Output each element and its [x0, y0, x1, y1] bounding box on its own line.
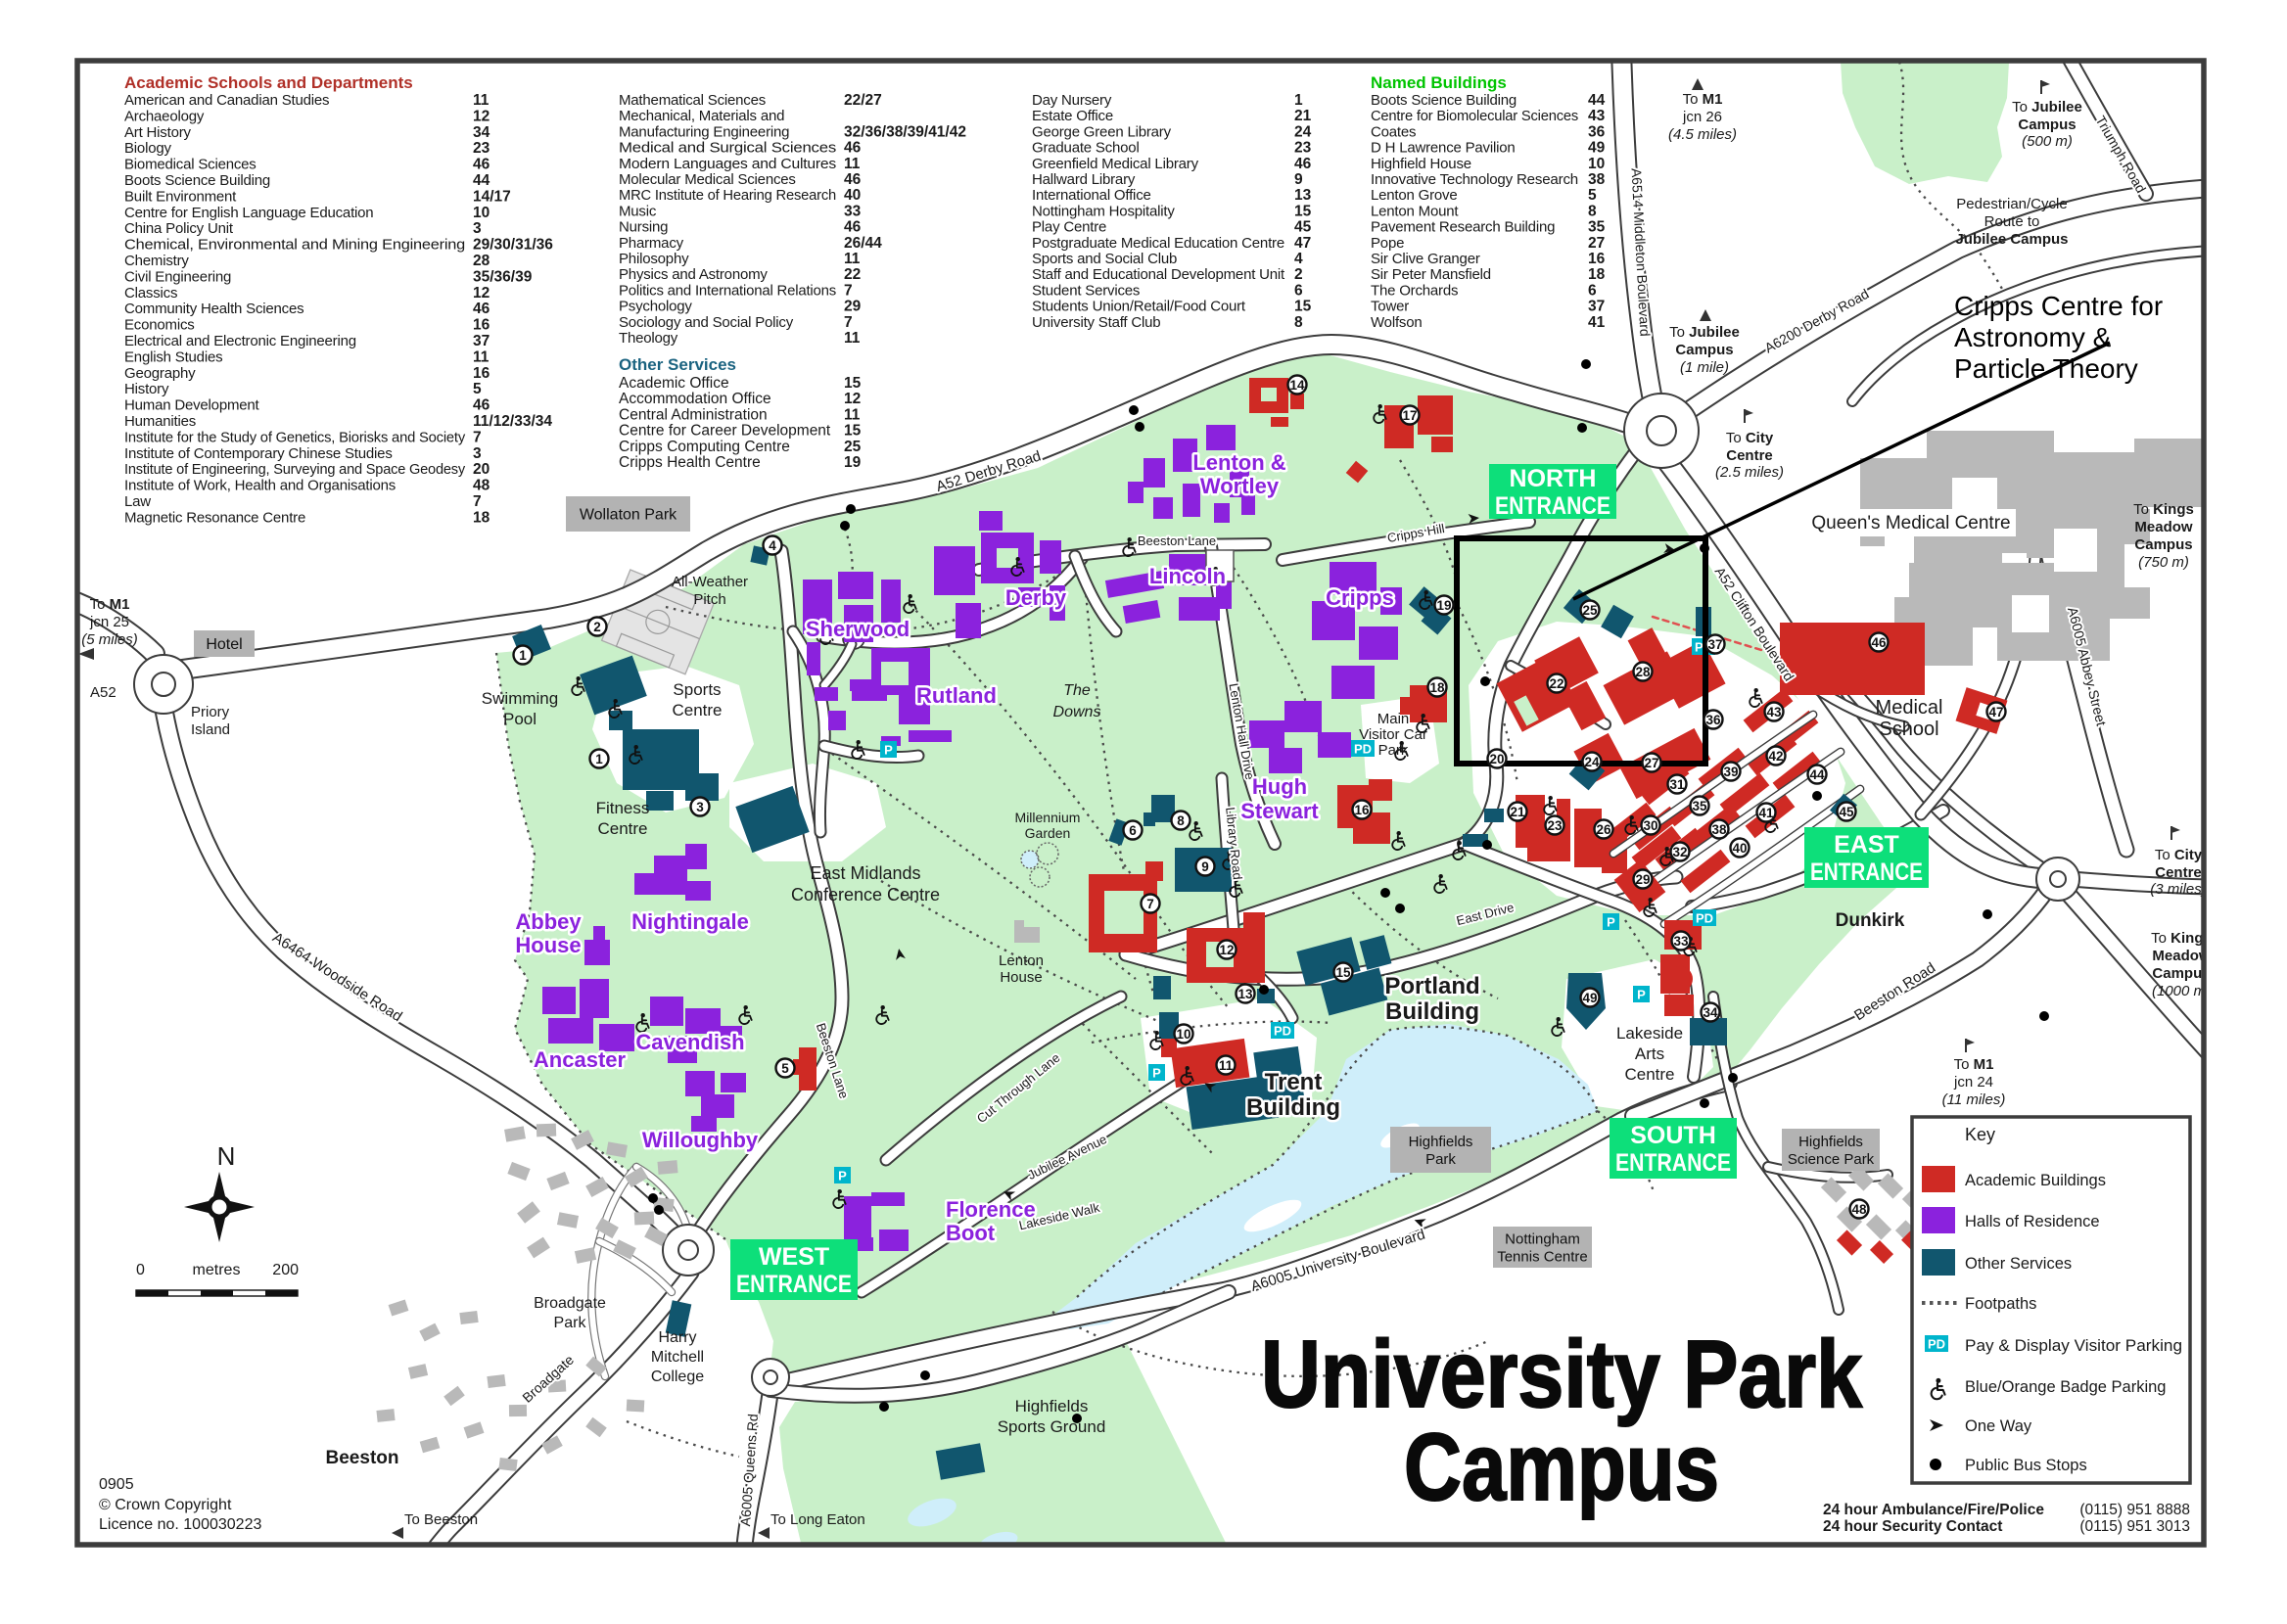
svg-text:Staff and Educational Developm: Staff and Educational Development Unit — [1032, 266, 1285, 283]
svg-text:Pharmacy: Pharmacy — [619, 235, 684, 252]
svg-text:1: 1 — [1294, 92, 1303, 109]
svg-text:Sports Ground: Sports Ground — [998, 1417, 1106, 1436]
svg-text:3: 3 — [696, 800, 704, 814]
svg-text:To Jubilee: To Jubilee — [2012, 99, 2082, 116]
svg-text:Derby: Derby — [1005, 585, 1067, 610]
svg-text:Highfield House: Highfield House — [1371, 156, 1471, 172]
svg-text:Main: Main — [1377, 711, 1410, 727]
svg-text:12: 12 — [473, 108, 490, 124]
svg-text:jcn 26: jcn 26 — [1682, 109, 1722, 125]
svg-text:George Green Library: George Green Library — [1032, 123, 1172, 140]
svg-text:jcn 24: jcn 24 — [1953, 1074, 1993, 1090]
svg-text:Institute of Engineering, Surv: Institute of Engineering, Surveying and … — [124, 461, 466, 478]
svg-text:33: 33 — [1673, 934, 1689, 949]
svg-text:Physics and Astronomy: Physics and Astronomy — [619, 266, 768, 283]
svg-text:7: 7 — [1146, 897, 1154, 911]
svg-text:Student Services: Student Services — [1032, 282, 1140, 299]
svg-text:Building: Building — [1246, 1094, 1340, 1121]
svg-text:Park: Park — [554, 1315, 587, 1331]
svg-text:Science Park: Science Park — [1788, 1151, 1875, 1168]
svg-text:Molecular Medical Sciences: Molecular Medical Sciences — [619, 171, 796, 188]
svg-text:All-Weather: All-Weather — [672, 574, 748, 590]
svg-text:38: 38 — [1711, 822, 1727, 837]
svg-text:Beeston: Beeston — [326, 1448, 399, 1468]
svg-text:5: 5 — [1588, 187, 1597, 204]
svg-text:Abbey: Abbey — [515, 909, 582, 934]
svg-text:(750 m): (750 m) — [2138, 554, 2189, 571]
svg-text:24: 24 — [1584, 755, 1600, 769]
svg-text:46: 46 — [1294, 156, 1312, 172]
svg-text:P: P — [838, 1169, 847, 1183]
svg-text:Lenton: Lenton — [999, 952, 1044, 969]
svg-text:East Midlands: East Midlands — [810, 863, 920, 883]
svg-text:Nightingale: Nightingale — [631, 909, 749, 934]
svg-text:Named Buildings: Named Buildings — [1371, 73, 1507, 92]
svg-text:12: 12 — [473, 285, 490, 302]
svg-text:14: 14 — [1289, 378, 1305, 393]
svg-text:Human Development: Human Development — [124, 397, 260, 414]
svg-text:Park: Park — [1425, 1151, 1456, 1168]
svg-text:Centre for Biomolecular Scienc: Centre for Biomolecular Sciences — [1371, 108, 1578, 124]
svg-text:8: 8 — [1177, 813, 1185, 828]
svg-text:International Office: International Office — [1032, 187, 1151, 204]
svg-text:Pitch: Pitch — [693, 591, 725, 608]
svg-text:(0115) 951 8888: (0115) 951 8888 — [2079, 1502, 2190, 1518]
svg-text:Arts: Arts — [1635, 1044, 1664, 1063]
svg-text:26/44: 26/44 — [844, 235, 882, 252]
svg-text:Philosophy: Philosophy — [619, 251, 689, 267]
svg-text:Hallward Library: Hallward Library — [1032, 171, 1136, 188]
svg-text:48: 48 — [473, 478, 490, 494]
svg-text:6: 6 — [1294, 282, 1303, 299]
svg-text:3: 3 — [473, 220, 482, 237]
svg-text:23: 23 — [473, 140, 490, 157]
svg-text:11: 11 — [844, 330, 861, 347]
svg-text:Civil Engineering: Civil Engineering — [124, 268, 231, 285]
svg-text:40: 40 — [844, 187, 861, 204]
svg-text:Rutland: Rutland — [916, 683, 997, 708]
svg-text:(2.5 miles): (2.5 miles) — [1715, 464, 1784, 481]
svg-text:Pay & Display Visitor Parking: Pay & Display Visitor Parking — [1965, 1337, 2182, 1355]
svg-text:A52: A52 — [90, 684, 117, 701]
svg-text:37: 37 — [1707, 637, 1722, 652]
svg-text:Willoughby: Willoughby — [642, 1128, 759, 1152]
svg-text:17: 17 — [1402, 408, 1417, 423]
svg-text:11: 11 — [844, 406, 861, 423]
svg-text:Harry: Harry — [658, 1329, 696, 1346]
svg-text:Psychology: Psychology — [619, 299, 692, 315]
svg-text:4: 4 — [1294, 251, 1303, 267]
svg-text:Manufacturing Engineering: Manufacturing Engineering — [619, 123, 789, 140]
svg-text:Lenton &: Lenton & — [1192, 450, 1285, 475]
svg-text:42: 42 — [1768, 749, 1783, 764]
svg-text:Route to: Route to — [1984, 213, 2040, 230]
svg-text:Campus: Campus — [2134, 536, 2192, 553]
svg-text:18: 18 — [1588, 266, 1606, 283]
svg-text:5: 5 — [781, 1061, 789, 1076]
svg-text:24: 24 — [1294, 123, 1312, 140]
svg-text:Millennium: Millennium — [1015, 810, 1081, 825]
svg-text:History: History — [124, 381, 169, 397]
svg-text:13: 13 — [1237, 987, 1253, 1001]
svg-text:Sports: Sports — [673, 680, 721, 699]
svg-text:Island: Island — [191, 721, 230, 738]
svg-text:Wollaton Park: Wollaton Park — [580, 507, 677, 524]
svg-text:35: 35 — [1588, 219, 1606, 236]
svg-text:Sports and Social Club: Sports and Social Club — [1032, 251, 1177, 267]
svg-text:To M1: To M1 — [1954, 1056, 1994, 1073]
svg-text:7: 7 — [844, 314, 853, 331]
svg-text:Pool: Pool — [503, 710, 537, 728]
svg-text:House: House — [1000, 969, 1042, 986]
svg-text:To Jubilee: To Jubilee — [1669, 324, 1740, 341]
svg-text:43: 43 — [1588, 108, 1606, 124]
svg-text:32/36/38/39/41/42: 32/36/38/39/41/42 — [844, 123, 966, 140]
svg-text:Nottingham Hospitality: Nottingham Hospitality — [1032, 203, 1175, 219]
svg-text:49: 49 — [1588, 140, 1606, 157]
svg-text:46: 46 — [473, 301, 490, 317]
svg-text:7: 7 — [844, 282, 853, 299]
svg-text:24 hour Security Contact: 24 hour Security Contact — [1823, 1518, 2002, 1535]
svg-text:Geography: Geography — [124, 365, 196, 382]
svg-text:(4.5 miles): (4.5 miles) — [1668, 126, 1737, 143]
svg-text:Campus: Campus — [2018, 116, 2076, 133]
svg-text:Graduate School: Graduate School — [1032, 140, 1140, 157]
svg-text:22: 22 — [1549, 676, 1564, 691]
svg-text:(500 m): (500 m) — [2022, 133, 2073, 150]
svg-text:Law: Law — [124, 493, 151, 510]
svg-text:38: 38 — [1588, 171, 1606, 188]
svg-text:29: 29 — [844, 299, 862, 315]
svg-text:Play Centre: Play Centre — [1032, 219, 1106, 236]
svg-text:10: 10 — [473, 205, 490, 221]
svg-text:46: 46 — [844, 140, 862, 157]
svg-text:10: 10 — [1588, 156, 1605, 172]
svg-text:36: 36 — [1588, 123, 1606, 140]
svg-text:PD: PD — [1354, 742, 1372, 757]
svg-text:Meadow: Meadow — [2134, 519, 2193, 535]
svg-text:Biomedical Sciences: Biomedical Sciences — [124, 157, 257, 173]
svg-text:0: 0 — [136, 1262, 145, 1278]
svg-text:15: 15 — [1294, 299, 1312, 315]
svg-text:27: 27 — [1588, 235, 1605, 252]
svg-text:7: 7 — [473, 493, 482, 510]
svg-text:Pavement Research Building: Pavement Research Building — [1371, 219, 1555, 236]
svg-text:25: 25 — [1582, 603, 1598, 618]
svg-text:Queen's Medical Centre: Queen's Medical Centre — [1811, 513, 2010, 534]
svg-text:Cripps Centre for: Cripps Centre for — [1954, 291, 2163, 321]
svg-text:P: P — [1607, 915, 1615, 930]
svg-text:Hugh: Hugh — [1252, 774, 1307, 799]
svg-text:Footpaths: Footpaths — [1965, 1295, 2036, 1313]
svg-text:Lenton Grove: Lenton Grove — [1371, 187, 1458, 204]
svg-text:Music: Music — [619, 203, 657, 219]
svg-text:6: 6 — [1129, 823, 1137, 838]
svg-text:To M1: To M1 — [90, 596, 130, 613]
svg-text:Institute of Contemporary Chin: Institute of Contemporary Chinese Studie… — [124, 445, 393, 462]
svg-text:10: 10 — [1176, 1027, 1190, 1042]
svg-text:22/27: 22/27 — [844, 92, 882, 109]
svg-text:3: 3 — [473, 445, 482, 462]
svg-text:Electrical and Electronic Engi: Electrical and Electronic Engineering — [124, 333, 356, 349]
svg-text:Students Union/Retail/Food Cou: Students Union/Retail/Food Court — [1032, 299, 1246, 315]
svg-text:To Kings: To Kings — [2133, 501, 2194, 518]
svg-text:Lenton Mount: Lenton Mount — [1371, 203, 1459, 219]
svg-text:Central Administration: Central Administration — [619, 406, 768, 423]
svg-text:37: 37 — [473, 333, 490, 349]
svg-text:PD: PD — [1928, 1337, 1945, 1352]
svg-text:Beeston Lane: Beeston Lane — [1138, 534, 1216, 548]
svg-text:English Studies: English Studies — [124, 348, 222, 365]
svg-text:32: 32 — [1672, 845, 1687, 859]
svg-text:Blue/Orange Badge Parking: Blue/Orange Badge Parking — [1965, 1378, 2166, 1396]
svg-text:Portland: Portland — [1384, 973, 1479, 999]
svg-text:Community Health Sciences: Community Health Sciences — [124, 301, 303, 317]
svg-text:Centre for Career Development: Centre for Career Development — [619, 423, 831, 440]
svg-text:44: 44 — [473, 172, 490, 189]
svg-text:43: 43 — [1766, 705, 1782, 719]
svg-text:29: 29 — [1635, 872, 1650, 887]
svg-text:(5 miles): (5 miles) — [81, 631, 138, 648]
svg-text:28: 28 — [1635, 665, 1651, 679]
svg-text:Tower: Tower — [1371, 299, 1409, 315]
svg-text:15: 15 — [844, 423, 862, 440]
svg-text:14/17: 14/17 — [473, 188, 511, 205]
svg-text:41: 41 — [1758, 806, 1774, 820]
svg-text:25: 25 — [844, 439, 862, 455]
svg-text:23: 23 — [1547, 818, 1563, 833]
svg-text:34: 34 — [473, 124, 490, 141]
svg-text:Sir Peter Mansfield: Sir Peter Mansfield — [1371, 266, 1491, 283]
svg-text:45: 45 — [1294, 219, 1312, 236]
svg-text:15: 15 — [1335, 965, 1351, 980]
svg-text:20: 20 — [473, 461, 490, 478]
svg-text:46: 46 — [844, 219, 862, 236]
svg-text:Modern Languages and Cultures: Modern Languages and Cultures — [619, 156, 836, 172]
svg-text:© Crown Copyright: © Crown Copyright — [99, 1497, 232, 1513]
svg-text:Downs: Downs — [1053, 704, 1101, 720]
svg-text:Centre: Centre — [1726, 447, 1773, 464]
svg-text:Halls of Residence: Halls of Residence — [1965, 1213, 2100, 1230]
svg-text:8: 8 — [1294, 314, 1303, 331]
svg-text:12: 12 — [844, 391, 861, 407]
svg-text:26: 26 — [1596, 822, 1611, 837]
svg-text:Academic Buildings: Academic Buildings — [1965, 1172, 2106, 1189]
svg-text:(11 miles): (11 miles) — [1942, 1091, 2006, 1108]
svg-text:(3 miles): (3 miles) — [2150, 881, 2207, 898]
svg-text:Built Environment: Built Environment — [124, 188, 237, 205]
svg-text:35: 35 — [1692, 799, 1707, 813]
svg-text:Other Services: Other Services — [1965, 1255, 2072, 1273]
svg-text:Theology: Theology — [619, 330, 678, 347]
svg-text:15: 15 — [1294, 203, 1312, 219]
svg-text:Boot: Boot — [946, 1221, 996, 1245]
svg-text:39: 39 — [1723, 765, 1738, 779]
svg-text:Broadgate: Broadgate — [534, 1295, 606, 1312]
svg-text:44: 44 — [1809, 767, 1825, 782]
svg-text:Lakeside: Lakeside — [1616, 1024, 1683, 1043]
svg-text:Tennis Centre: Tennis Centre — [1497, 1248, 1588, 1265]
svg-text:Academic Office: Academic Office — [619, 375, 729, 392]
svg-text:Boots Science Building: Boots Science Building — [1371, 92, 1517, 109]
svg-text:MRC Institute of Hearing Resea: MRC Institute of Hearing Research — [619, 187, 836, 204]
svg-text:Cripps Health Centre: Cripps Health Centre — [619, 454, 761, 471]
svg-text:18: 18 — [473, 509, 490, 526]
svg-text:22: 22 — [844, 266, 861, 283]
svg-text:Humanities: Humanities — [124, 413, 196, 430]
svg-text:40: 40 — [1732, 841, 1747, 856]
svg-text:30: 30 — [1643, 818, 1657, 833]
svg-text:2: 2 — [593, 620, 601, 634]
svg-text:Ancaster: Ancaster — [534, 1047, 627, 1072]
svg-text:Trent: Trent — [1265, 1069, 1323, 1095]
svg-text:21: 21 — [1510, 805, 1525, 819]
svg-text:Greenfield Medical Library: Greenfield Medical Library — [1032, 156, 1199, 172]
svg-text:Nursing: Nursing — [619, 219, 668, 236]
svg-text:Hotel: Hotel — [206, 636, 242, 653]
svg-text:To City: To City — [1726, 430, 1774, 446]
svg-text:College: College — [651, 1369, 704, 1385]
svg-text:8: 8 — [1588, 203, 1597, 219]
svg-text:ENTRANCE: ENTRANCE — [1615, 1149, 1731, 1177]
svg-text:Mathematical Sciences: Mathematical Sciences — [619, 92, 766, 109]
svg-text:41: 41 — [1588, 314, 1606, 331]
svg-text:12: 12 — [1219, 943, 1234, 957]
svg-text:University Park: University Park — [1261, 1321, 1863, 1427]
svg-text:PD: PD — [1274, 1024, 1291, 1039]
svg-text:Pope: Pope — [1371, 235, 1404, 252]
svg-text:Cavendish: Cavendish — [635, 1030, 744, 1054]
svg-text:(1 mile): (1 mile) — [1680, 359, 1729, 376]
svg-text:EAST: EAST — [1834, 831, 1899, 858]
svg-text:Park: Park — [1378, 742, 1409, 759]
svg-text:ENTRANCE: ENTRANCE — [736, 1271, 852, 1298]
svg-text:7: 7 — [473, 429, 482, 445]
svg-text:jcn 25: jcn 25 — [89, 614, 129, 630]
svg-text:21: 21 — [1294, 108, 1312, 124]
svg-text:School: School — [1879, 719, 1938, 740]
svg-text:Boots Science Building: Boots Science Building — [124, 172, 270, 189]
svg-text:Chemistry: Chemistry — [124, 253, 189, 269]
svg-text:Coates: Coates — [1371, 123, 1416, 140]
svg-text:34: 34 — [1703, 1005, 1718, 1020]
svg-text:15: 15 — [844, 375, 862, 392]
svg-text:18: 18 — [1429, 680, 1445, 695]
svg-text:P: P — [1152, 1066, 1161, 1081]
svg-text:Key: Key — [1965, 1125, 1995, 1144]
svg-text:Licence no. 100030223: Licence no. 100030223 — [99, 1516, 261, 1533]
svg-text:19: 19 — [1436, 598, 1451, 613]
svg-text:47: 47 — [1294, 235, 1311, 252]
svg-text:Pedestrian/Cycle: Pedestrian/Cycle — [1956, 196, 2067, 212]
svg-text:45: 45 — [1839, 805, 1854, 819]
svg-text:Magnetic Resonance Centre: Magnetic Resonance Centre — [124, 509, 305, 526]
svg-text:11: 11 — [844, 251, 861, 267]
svg-text:Fitness: Fitness — [596, 799, 650, 817]
svg-text:49: 49 — [1582, 991, 1597, 1005]
svg-text:Stewart: Stewart — [1240, 799, 1319, 823]
svg-text:Day Nursery: Day Nursery — [1032, 92, 1112, 109]
svg-text:Institute for the Study of Gen: Institute for the Study of Genetics, Bio… — [124, 429, 466, 445]
svg-text:47: 47 — [1988, 705, 2003, 719]
svg-text:Campus: Campus — [1675, 342, 1733, 358]
svg-text:To City: To City — [2155, 847, 2203, 863]
svg-text:P: P — [1637, 988, 1646, 1002]
svg-text:Cripps: Cripps — [1326, 585, 1394, 610]
svg-text:Institute of Work, Health and: Institute of Work, Health and Organisati… — [124, 478, 396, 494]
svg-text:Sir Clive Granger: Sir Clive Granger — [1371, 251, 1480, 267]
svg-text:metres: metres — [193, 1262, 241, 1278]
svg-text:The Orchards: The Orchards — [1371, 282, 1458, 299]
svg-text:Sherwood: Sherwood — [806, 617, 910, 641]
svg-text:Centre: Centre — [672, 701, 722, 719]
svg-text:19: 19 — [844, 454, 862, 471]
svg-text:11: 11 — [844, 156, 861, 172]
svg-text:Other Services: Other Services — [619, 355, 736, 374]
svg-text:Archaeology: Archaeology — [124, 108, 205, 124]
svg-text:P: P — [884, 743, 893, 758]
svg-text:To Beeston: To Beeston — [404, 1511, 478, 1528]
svg-text:Economics: Economics — [124, 317, 195, 334]
svg-text:ENTRANCE: ENTRANCE — [1810, 858, 1923, 886]
svg-text:5: 5 — [473, 381, 482, 397]
svg-text:ENTRANCE: ENTRANCE — [1495, 492, 1610, 520]
svg-text:Lincoln: Lincoln — [1149, 564, 1226, 588]
svg-text:China Policy Unit: China Policy Unit — [124, 220, 234, 237]
svg-text:44: 44 — [1588, 92, 1606, 109]
svg-text:Wortley: Wortley — [1200, 474, 1280, 498]
svg-text:To M1: To M1 — [1683, 91, 1723, 108]
svg-text:Politics and International Rel: Politics and International Relations — [619, 282, 836, 299]
svg-text:46: 46 — [844, 171, 862, 188]
svg-text:200: 200 — [272, 1262, 299, 1278]
svg-text:28: 28 — [473, 253, 490, 269]
svg-text:46: 46 — [473, 397, 490, 414]
svg-text:23: 23 — [1294, 140, 1312, 157]
svg-text:0905: 0905 — [99, 1476, 134, 1493]
svg-text:Sociology and Social Policy: Sociology and Social Policy — [619, 314, 794, 331]
svg-text:Campus: Campus — [1404, 1414, 1719, 1520]
svg-text:Academic Schools and Departmen: Academic Schools and Departments — [124, 73, 413, 92]
svg-text:American and Canadian Studies: American and Canadian Studies — [124, 92, 329, 109]
svg-text:29/30/31/36: 29/30/31/36 — [473, 237, 553, 254]
svg-text:Jubilee Campus: Jubilee Campus — [1955, 231, 2068, 248]
svg-text:Biology: Biology — [124, 140, 171, 157]
svg-text:11: 11 — [1219, 1058, 1234, 1073]
svg-text:Highfields: Highfields — [1015, 1397, 1089, 1415]
svg-text:9: 9 — [1201, 859, 1209, 874]
svg-text:Medical and Surgical Sciences: Medical and Surgical Sciences — [619, 140, 836, 157]
svg-text:36: 36 — [1705, 713, 1721, 727]
svg-text:Accommodation Office: Accommodation Office — [619, 391, 771, 407]
svg-text:11: 11 — [473, 348, 490, 365]
svg-text:Conference Centre: Conference Centre — [791, 885, 940, 905]
svg-text:Florence: Florence — [946, 1197, 1036, 1222]
svg-text:48: 48 — [1851, 1202, 1867, 1217]
svg-text:16: 16 — [1588, 251, 1606, 267]
svg-text:Centre: Centre — [597, 819, 647, 838]
svg-text:Priory: Priory — [191, 704, 230, 720]
svg-text:33: 33 — [844, 203, 862, 219]
svg-text:46: 46 — [1871, 635, 1887, 650]
svg-text:1: 1 — [519, 648, 527, 663]
svg-text:Wolfson: Wolfson — [1371, 314, 1423, 331]
svg-text:20: 20 — [1489, 752, 1504, 766]
svg-text:31: 31 — [1669, 777, 1685, 792]
svg-text:Art History: Art History — [124, 124, 192, 141]
svg-text:13: 13 — [1294, 187, 1312, 204]
svg-text:6: 6 — [1588, 282, 1597, 299]
